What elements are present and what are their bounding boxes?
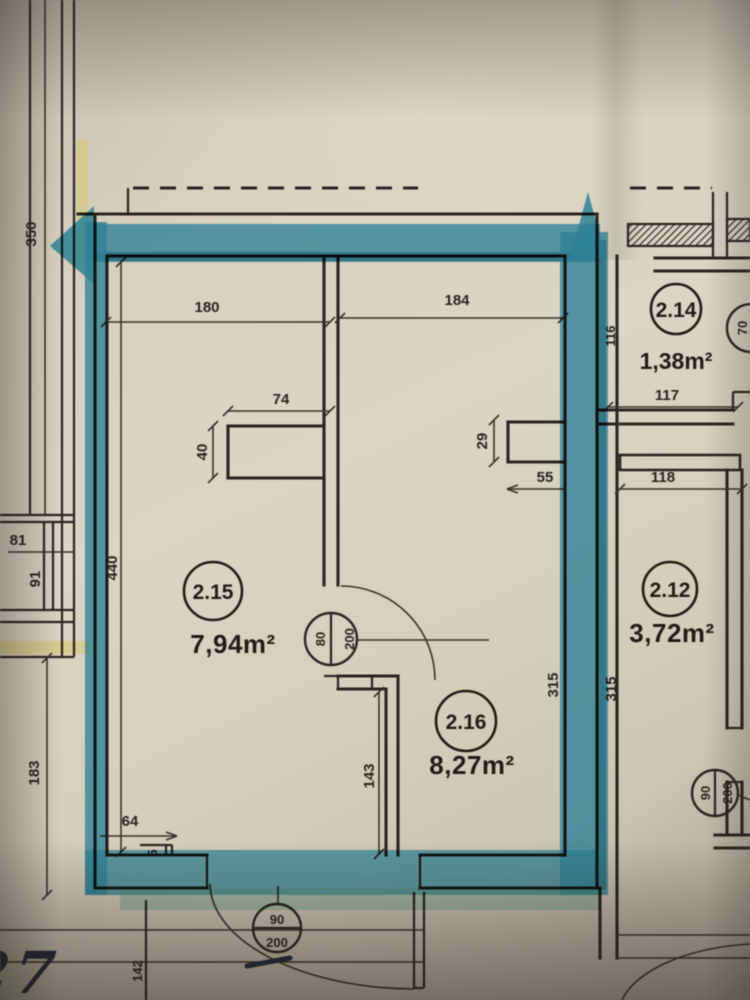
floor-plan-drawing: 80 200 90 200 90 200 70 xyxy=(0,0,750,1000)
entrance-door-height: 200 xyxy=(266,935,288,950)
yellow-highlight-left-mid xyxy=(0,641,90,654)
neighbor-door-width: 90 xyxy=(698,786,713,800)
unit-outer-walls xyxy=(78,188,617,888)
dim-29: 29 xyxy=(474,433,491,450)
handwritten-text: lok. : 27 xyxy=(0,938,64,1000)
room-area-2-12: 3,72m² xyxy=(629,618,714,648)
window-hatch-214 xyxy=(628,224,713,246)
teal-arrowhead-left xyxy=(50,206,94,284)
interior-door-80-200: 80 200 xyxy=(305,586,489,680)
room-number-2-16: 2.16 xyxy=(446,711,487,734)
room-number-2-15: 2.15 xyxy=(193,581,234,604)
dim-40: 40 xyxy=(194,444,211,461)
adjacent-structure-left xyxy=(0,0,74,657)
interior-door-height: 200 xyxy=(342,628,357,650)
window-symbol-70: 70 xyxy=(727,304,750,352)
room-number-2-12: 2.12 xyxy=(650,579,691,602)
interior-door-width: 80 xyxy=(313,632,328,646)
dim-118: 118 xyxy=(651,469,675,486)
dim-350: 350 xyxy=(23,221,40,246)
teal-smear-bottom xyxy=(120,888,600,910)
corridor-door-arc xyxy=(622,944,750,1000)
dim-55: 55 xyxy=(537,469,554,486)
wall-top-212 xyxy=(620,455,740,470)
dim-74: 74 xyxy=(273,391,290,408)
dim-91: 91 xyxy=(27,571,44,588)
dim-183: 183 xyxy=(26,760,43,785)
dim-64: 64 xyxy=(122,813,139,830)
dim-143: 143 xyxy=(361,763,378,788)
dim-184: 184 xyxy=(444,292,470,309)
window-hatch-right xyxy=(727,219,750,241)
floor-plan-photo: 80 200 90 200 90 200 70 xyxy=(0,0,750,1000)
window-width: 70 xyxy=(735,321,750,335)
entrance-door-width: 90 xyxy=(270,912,284,927)
room-area-2-16: 8,27m² xyxy=(429,750,514,780)
highlighter-marks xyxy=(0,140,608,910)
teal-highlight-left xyxy=(85,222,107,895)
dim-142: 142 xyxy=(130,960,145,982)
room-area-2-14: 1,38m² xyxy=(640,348,713,374)
dim-81: 81 xyxy=(10,532,27,549)
room-area-2-15: 7,94m² xyxy=(190,629,275,659)
room-number-2-14: 2.14 xyxy=(656,299,697,322)
dim-117: 117 xyxy=(655,387,679,404)
neighbor-rooms-walls xyxy=(600,188,750,848)
dim-315-left: 315 xyxy=(545,672,562,697)
dim-180: 180 xyxy=(194,299,219,316)
teal-highlight-right-edge xyxy=(596,240,606,890)
room-labels: 2.15 7,94m² 2.16 8,27m² 2.14 1,38m² 2.12… xyxy=(184,284,715,780)
teal-highlight-top-edge xyxy=(88,252,600,261)
neighbor-door-height: 200 xyxy=(720,782,735,804)
